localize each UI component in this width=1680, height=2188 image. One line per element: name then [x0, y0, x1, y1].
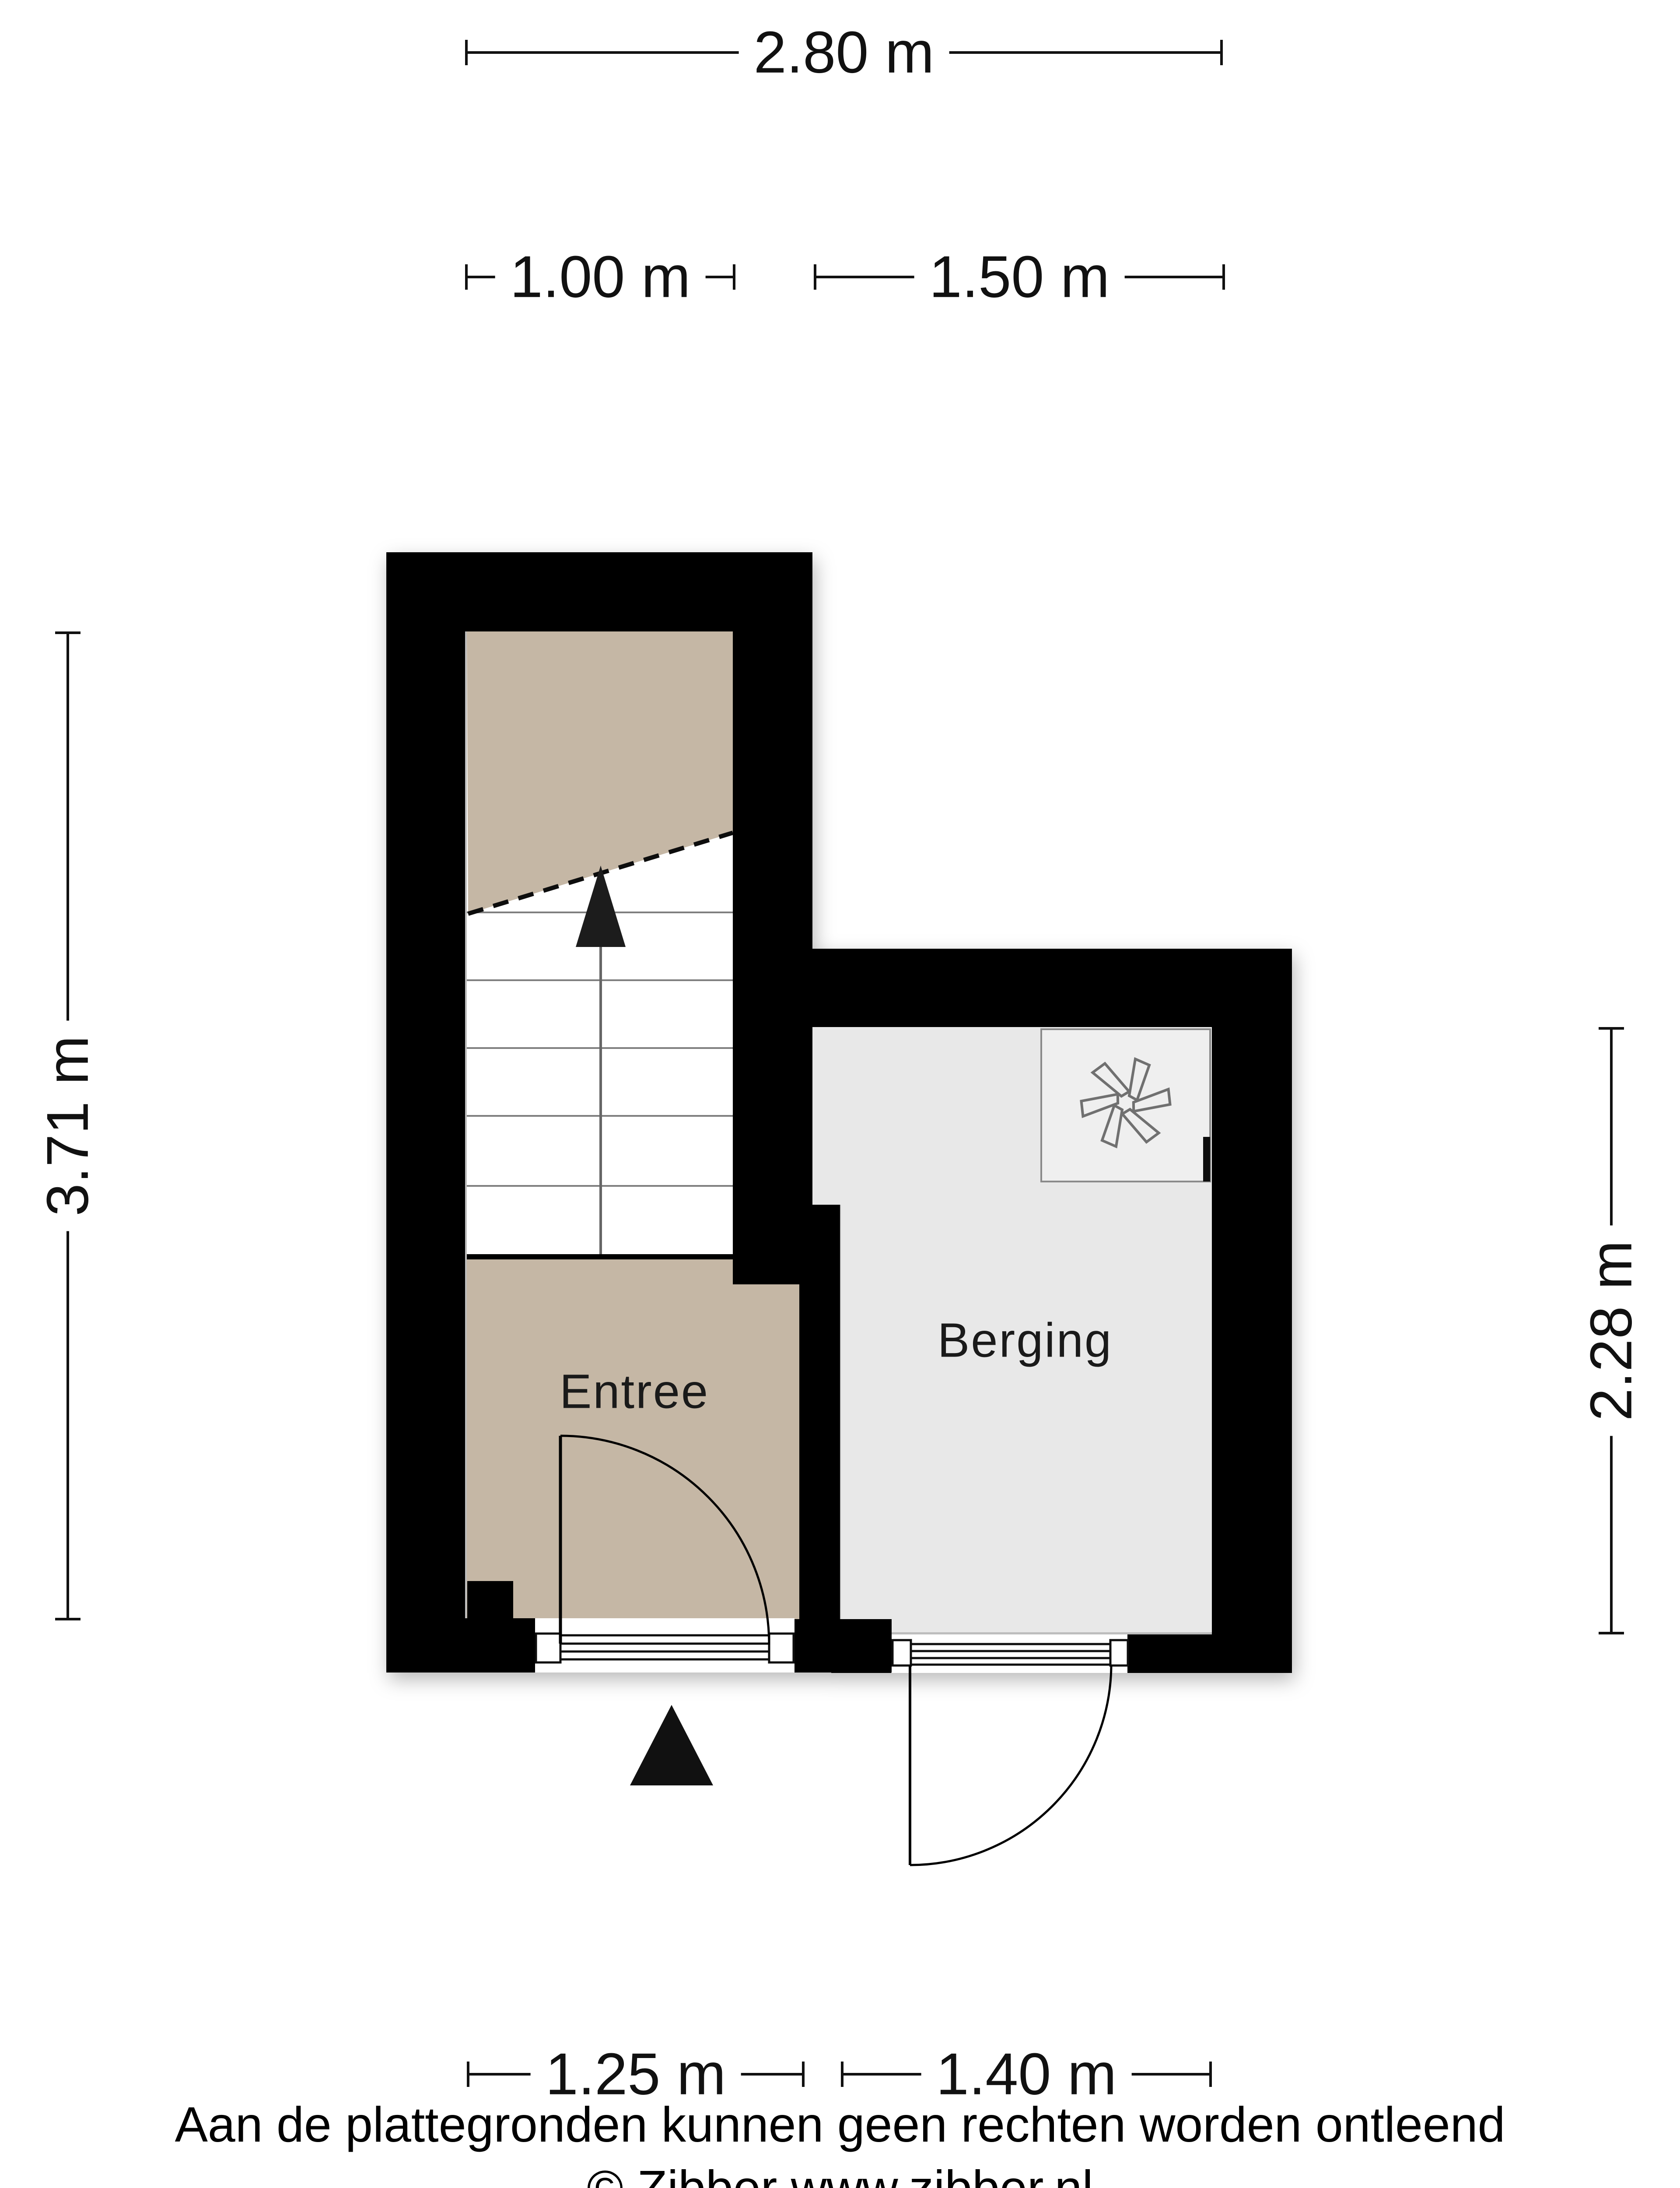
ventilation-unit-box: [1041, 1029, 1210, 1182]
berging-door: [910, 1666, 1111, 1865]
dimension-left-side-label: 3.71 m: [35, 1021, 101, 1231]
disclaimer-text: Aan de plattegronden kunnen geen rechten…: [0, 2096, 1680, 2153]
berging-door-threshold: [892, 1634, 1128, 1673]
floorplan-page: Entree Berging 2.80 m 1.00 m 1.50 m 3.71…: [0, 0, 1680, 2188]
entree-door-threshold: [535, 1618, 794, 1673]
entree-floor: [467, 1259, 799, 1635]
dimension-right-side-label: 2.28 m: [1579, 1226, 1644, 1436]
dimension-top-total-label: 2.80 m: [739, 20, 949, 85]
copyright-text: © Zibber www.zibber.nl: [0, 2160, 1680, 2188]
floorplan-drawing: [0, 0, 1680, 2188]
room-label-entree: Entree: [560, 1364, 709, 1420]
room-label-berging: Berging: [938, 1313, 1113, 1368]
dimension-top-right-label: 1.50 m: [914, 245, 1125, 310]
entrance-arrow-icon: [630, 1705, 713, 1785]
dimension-top-left-label: 1.00 m: [495, 245, 706, 310]
ventilation-unit-handle: [1203, 1137, 1210, 1182]
